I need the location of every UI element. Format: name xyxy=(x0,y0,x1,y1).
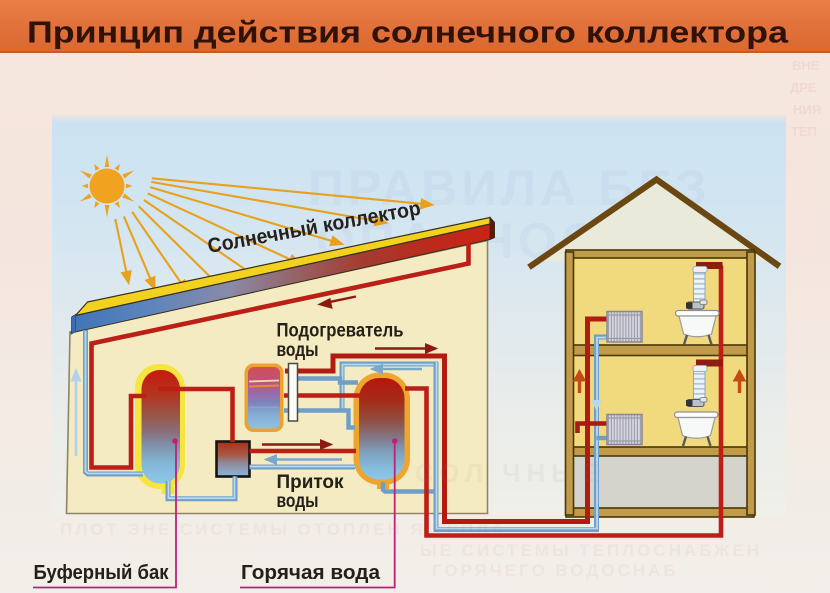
svg-text:воды: воды xyxy=(277,490,319,512)
svg-text:ДРЕ: ДРЕ xyxy=(790,80,817,95)
svg-text:ТЕП: ТЕП xyxy=(791,124,817,139)
svg-text:ПЛОТ ЭНЕ СИСТЕМЫ ОТОПЛЕН Я ТЕП: ПЛОТ ЭНЕ СИСТЕМЫ ОТОПЛЕН Я ТЕПЛА xyxy=(60,520,507,539)
svg-text:воды: воды xyxy=(277,339,319,361)
svg-text:Принцип действия солнечного ко: Принцип действия солнечного коллектора xyxy=(27,15,789,50)
svg-text:ЫЕ СИСТЕМЫ ТЕПЛОСНАБЖЕН: ЫЕ СИСТЕМЫ ТЕПЛОСНАБЖЕН xyxy=(420,541,762,560)
svg-text:ГОРЯЧЕГО ВОДОСНАБ: ГОРЯЧЕГО ВОДОСНАБ xyxy=(432,561,679,580)
svg-text:СОЛ ЧНЫЕ: СОЛ ЧНЫЕ xyxy=(415,458,606,488)
svg-text:Горячая вода: Горячая вода xyxy=(241,561,381,584)
svg-text:НИЯ: НИЯ xyxy=(793,102,821,117)
svg-text:ВНЕ: ВНЕ xyxy=(792,58,820,73)
svg-text:Буферный бак: Буферный бак xyxy=(34,561,170,584)
